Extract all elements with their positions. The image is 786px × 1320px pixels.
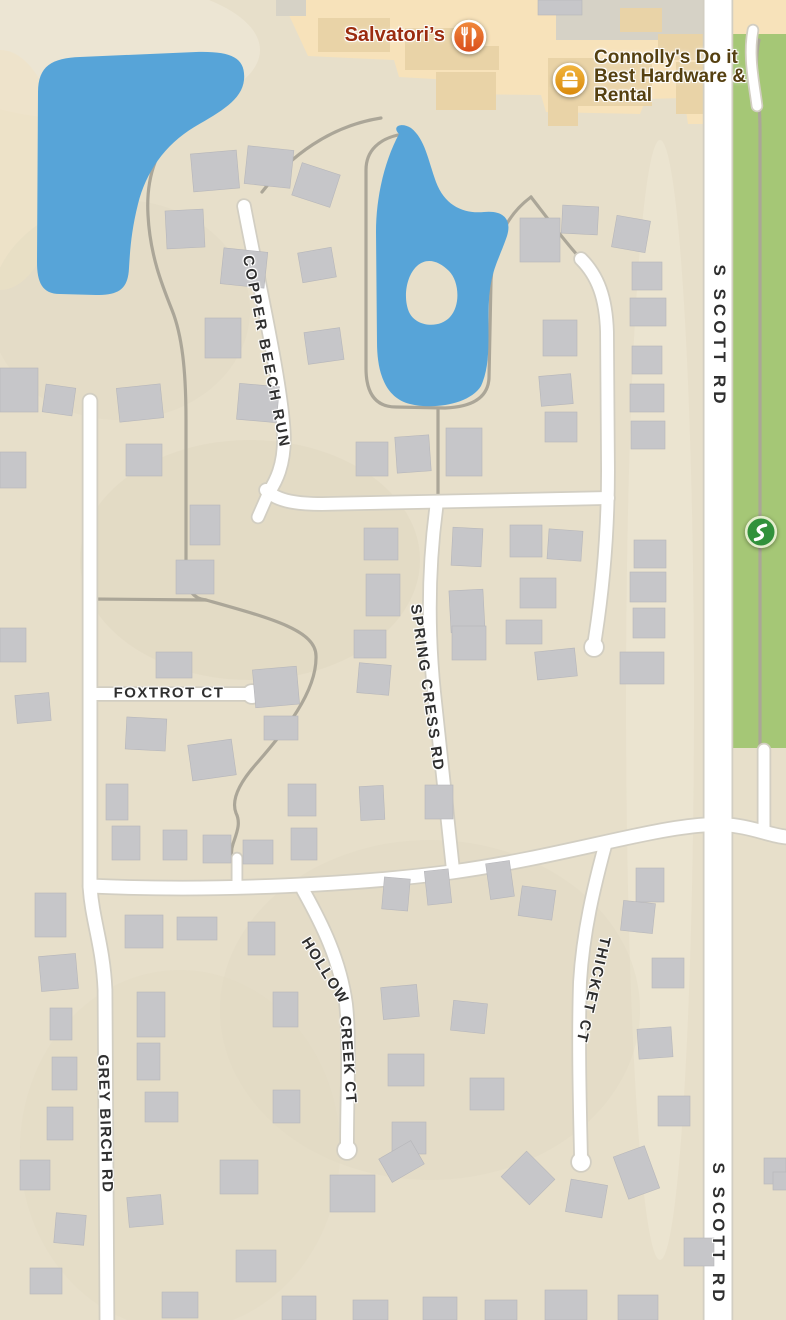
map-container[interactable]: COPPER BEECH RUN SPRING CRESS RD FOXTROT… <box>0 0 786 1320</box>
trail-marker-icon[interactable] <box>744 515 778 549</box>
poi-label-connollys[interactable]: Connolly's Do it Best Hardware & Rental <box>594 48 746 105</box>
map-canvas <box>0 0 786 1320</box>
restaurant-icon[interactable] <box>451 19 487 55</box>
poi-label-salvatoris[interactable]: Salvatori’s <box>295 24 445 47</box>
poi-label-connollys-line2: Best Hardware & <box>594 67 746 86</box>
hardware-store-icon[interactable] <box>552 62 588 98</box>
poi-label-connollys-line3: Rental <box>594 86 746 105</box>
poi-label-connollys-line1: Connolly's Do it <box>594 48 746 67</box>
